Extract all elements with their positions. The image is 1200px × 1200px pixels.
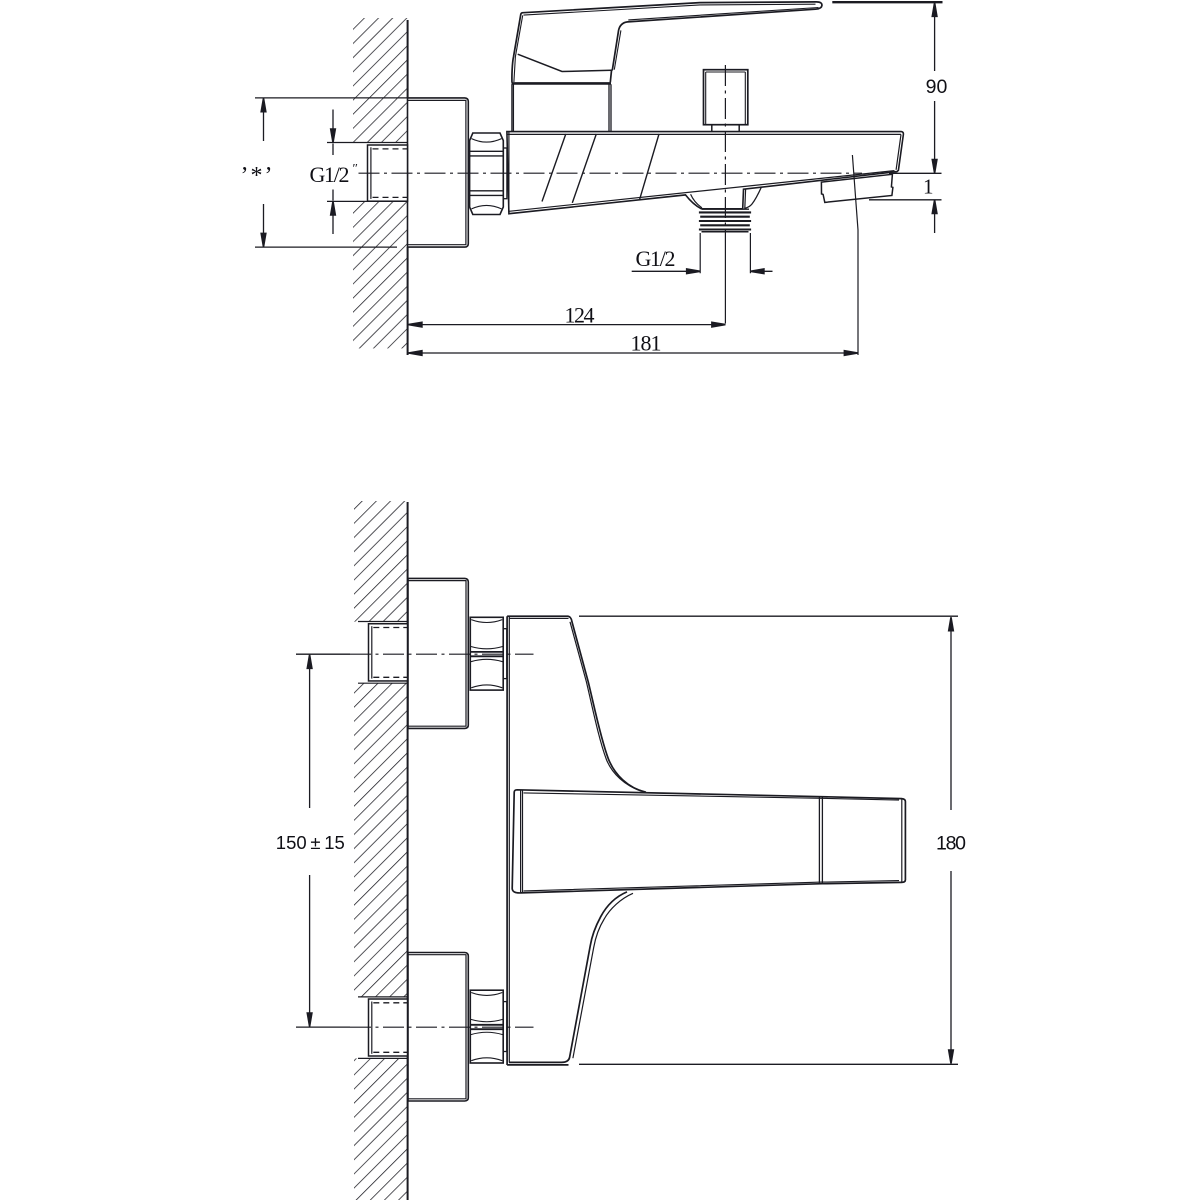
- svg-text:181: 181: [631, 331, 662, 356]
- svg-text:90: 90: [926, 76, 948, 98]
- svg-text:G1/2: G1/2: [310, 162, 350, 187]
- svg-text:150 ± 15: 150 ± 15: [276, 832, 345, 853]
- svg-text:1: 1: [923, 175, 934, 199]
- svg-text:’*’: ’*’: [241, 163, 275, 189]
- svg-text:G1/2: G1/2: [636, 246, 676, 271]
- svg-text:180: 180: [936, 833, 966, 855]
- svg-text:124: 124: [565, 303, 595, 328]
- svg-text:″: ″: [353, 161, 358, 176]
